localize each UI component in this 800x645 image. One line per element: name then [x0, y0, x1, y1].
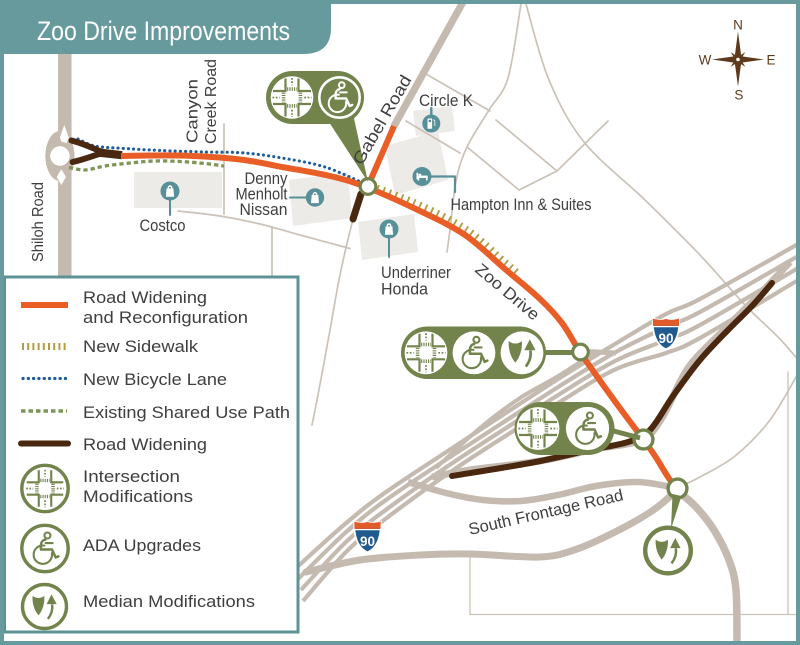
svg-text:Circle K: Circle K: [419, 92, 473, 110]
svg-text:Underriner: Underriner: [381, 264, 451, 282]
svg-text:New Bicycle Lane: New Bicycle Lane: [83, 370, 227, 389]
svg-text:Modifications: Modifications: [83, 487, 193, 506]
svg-text:Existing Shared Use Path: Existing Shared Use Path: [83, 403, 290, 422]
svg-text:Shiloh Road: Shiloh Road: [30, 182, 47, 262]
svg-text:Road Widening: Road Widening: [83, 288, 207, 307]
svg-text:Zoo Drive Improvements: Zoo Drive Improvements: [37, 16, 290, 46]
svg-text:Creek Road: Creek Road: [203, 59, 220, 144]
svg-text:Hampton Inn & Suites: Hampton Inn & Suites: [451, 196, 592, 214]
svg-text:S: S: [734, 88, 743, 103]
svg-text:Median Modifications: Median Modifications: [83, 592, 255, 611]
svg-text:Honda: Honda: [381, 281, 429, 299]
svg-text:Costco: Costco: [140, 217, 186, 235]
svg-text:W: W: [699, 53, 712, 68]
svg-text:ADA Upgrades: ADA Upgrades: [83, 536, 201, 555]
svg-text:Canyon: Canyon: [185, 79, 202, 143]
svg-text:Nissan: Nissan: [240, 201, 288, 219]
svg-text:E: E: [766, 53, 775, 68]
svg-text:New Sidewalk: New Sidewalk: [83, 337, 199, 356]
svg-text:Intersection: Intersection: [83, 467, 180, 486]
svg-text:Road Widening: Road Widening: [83, 435, 207, 454]
svg-text:N: N: [733, 18, 743, 33]
svg-text:and Reconfiguration: and Reconfiguration: [83, 308, 248, 327]
